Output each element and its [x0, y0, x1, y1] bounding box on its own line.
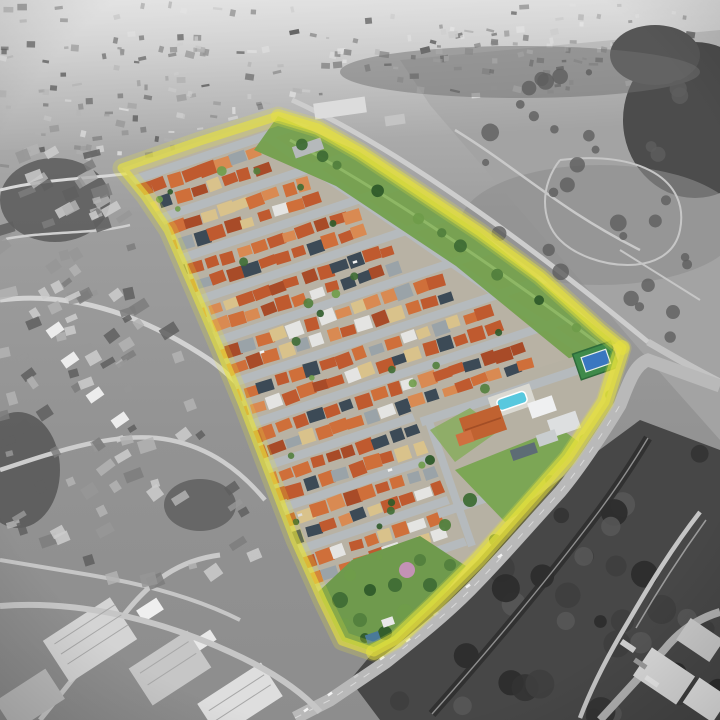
aerial-photo-canvas: [0, 0, 720, 720]
vignette: [0, 0, 720, 720]
aerial-photo: [0, 0, 720, 720]
